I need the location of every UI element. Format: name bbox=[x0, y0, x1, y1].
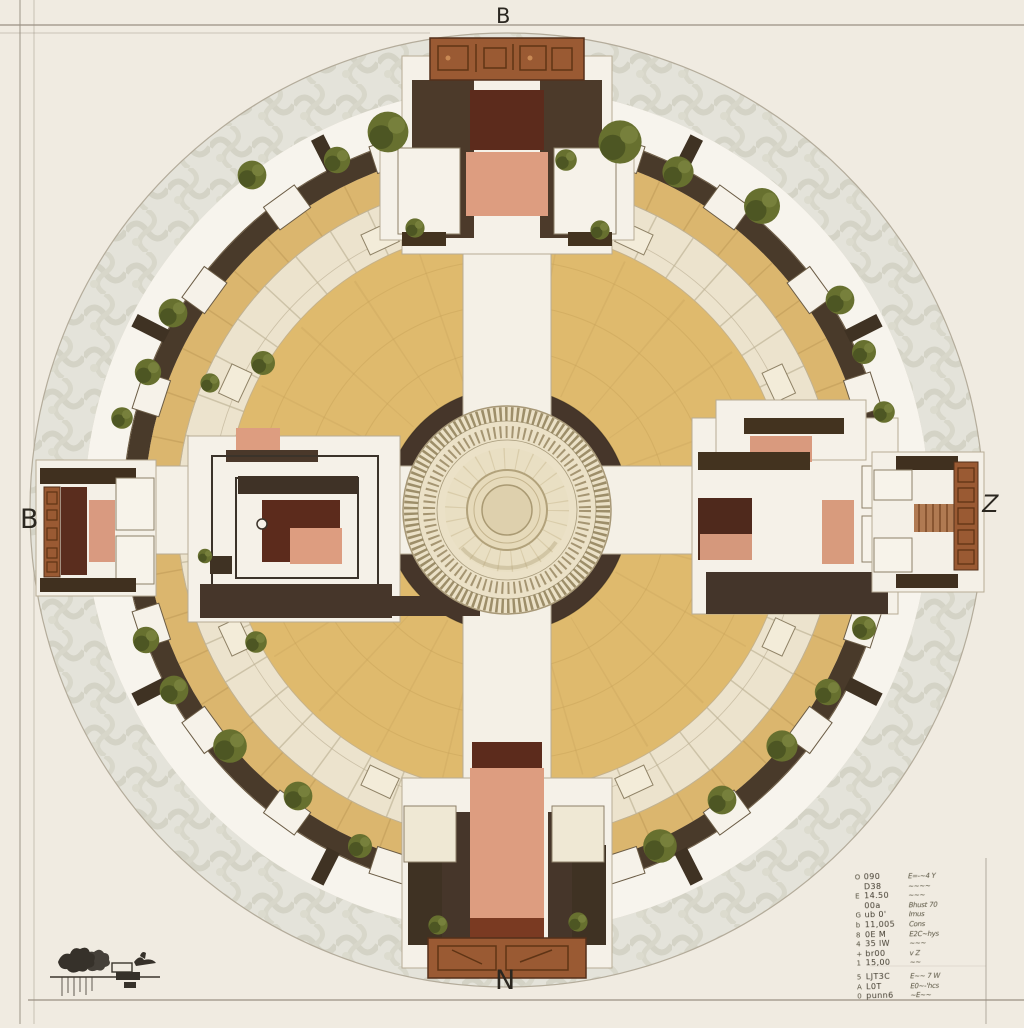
legend-code: ub 0' bbox=[864, 911, 908, 920]
legend-code: br00 bbox=[865, 949, 909, 958]
east-edge-gate bbox=[872, 452, 984, 592]
legend-mark: 4 bbox=[856, 941, 865, 949]
legend-key: O 090 E=-~4 Y D38 ~~~~ E 14.50 ~~~ 00a B… bbox=[855, 871, 998, 1003]
legend-desc: ~E~~ bbox=[910, 991, 998, 1000]
legend-code: 15,00 bbox=[865, 959, 909, 968]
legend-desc: v Z bbox=[909, 948, 997, 957]
plan-drawing bbox=[0, 0, 1024, 1024]
legend-desc: ~~~~ bbox=[907, 881, 995, 890]
legend-mark: 1 bbox=[856, 961, 865, 969]
margin-sketch bbox=[50, 948, 160, 996]
north-carved-lintel bbox=[430, 38, 584, 80]
section-label-bottom: N bbox=[495, 965, 515, 996]
legend-mark: A bbox=[857, 984, 866, 992]
legend-desc: E2C~hys bbox=[908, 929, 996, 938]
east-hatched-steps bbox=[914, 504, 956, 532]
west-edge-gate bbox=[36, 460, 156, 596]
legend-mark: G bbox=[855, 913, 864, 921]
legend-desc: ~~ bbox=[909, 958, 997, 967]
legend-code: 00a bbox=[864, 901, 908, 910]
legend-mark: 8 bbox=[856, 932, 865, 940]
section-label-left: B bbox=[20, 504, 39, 535]
west-carved-strip bbox=[44, 487, 60, 577]
legend-desc: E0~-'hcs bbox=[909, 981, 997, 990]
legend-mark: + bbox=[856, 951, 865, 959]
legend-code: LJT3C bbox=[866, 972, 910, 981]
legend-code: 14.50 bbox=[864, 892, 908, 901]
legend-mark: 0 bbox=[857, 993, 866, 1001]
legend-code: D38 bbox=[864, 882, 908, 891]
legend-mark: b bbox=[856, 922, 865, 930]
section-label-top: B bbox=[496, 4, 510, 28]
legend-code: L0T bbox=[866, 982, 910, 991]
central-platform bbox=[403, 406, 611, 614]
legend-desc: Bhust 70 bbox=[908, 900, 996, 909]
legend-mark: O bbox=[855, 874, 864, 882]
plan-sheet: B B Z N O 090 E=-~4 Y D38 ~~~~ E 14.50 ~… bbox=[0, 0, 1024, 1024]
legend-mark: E bbox=[855, 893, 864, 901]
legend-code: punn6 bbox=[866, 991, 910, 1000]
legend-code: 11,005 bbox=[865, 920, 909, 929]
legend-code: 35 lW bbox=[865, 940, 909, 949]
legend-mark: 5 bbox=[857, 974, 866, 982]
legend-code: 090 bbox=[864, 872, 908, 881]
east-carved-strip bbox=[954, 462, 978, 570]
legend-row: 0 punn6 ~E~~ bbox=[857, 990, 997, 1002]
legend-row: 1 15,00 ~~ bbox=[856, 957, 996, 969]
legend-code: 0E M bbox=[865, 930, 909, 939]
